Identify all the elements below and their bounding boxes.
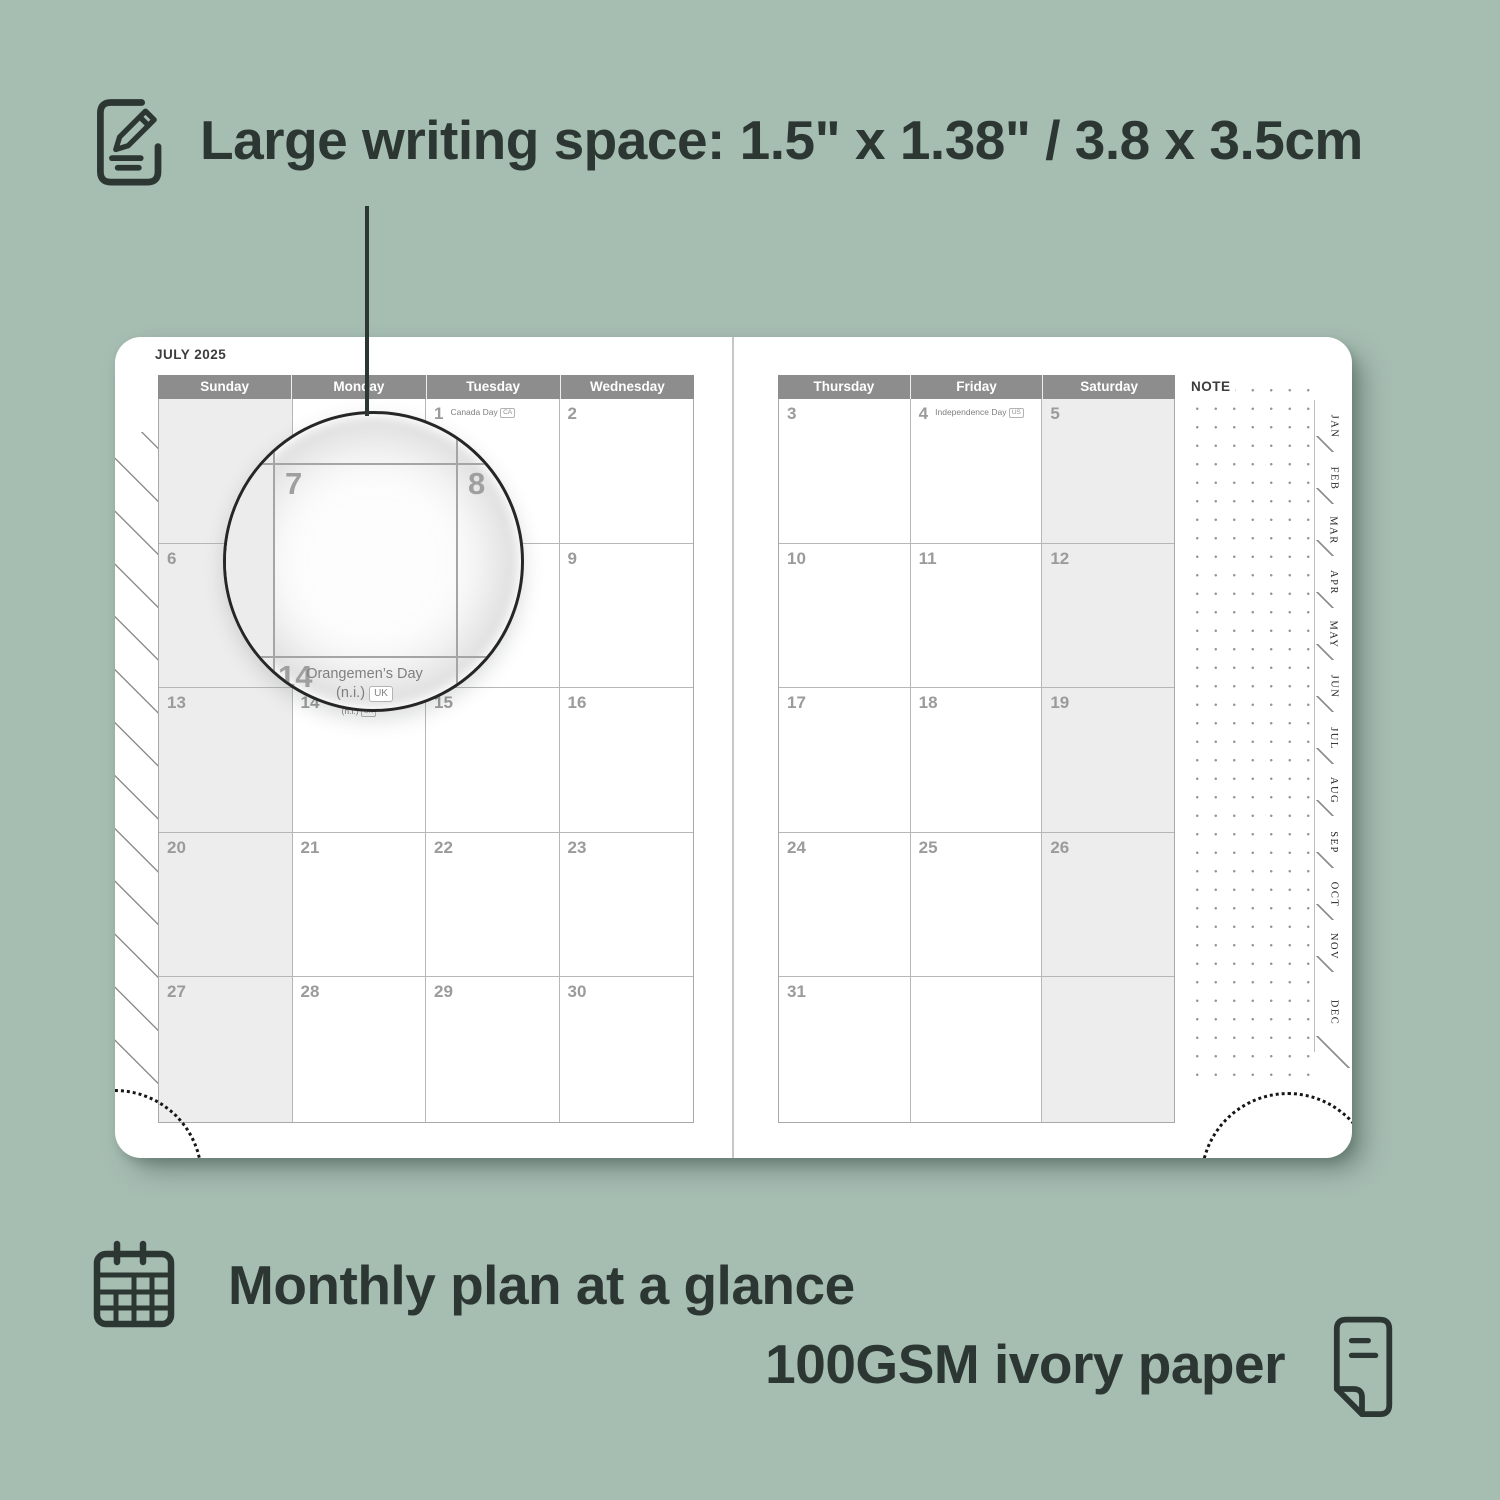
calendar-grid-icon <box>84 1232 184 1342</box>
feature-monthly-plan-label: Monthly plan at a glance <box>228 1255 855 1316</box>
calendar-cell-18: 18 <box>911 688 1043 833</box>
month-tab-jan: JAN <box>1314 400 1352 452</box>
month-tab-label: FEB <box>1328 466 1339 490</box>
calendar-cell-21: 21 <box>293 833 427 978</box>
month-tab-mar: MAR <box>1314 504 1352 556</box>
month-tab-label: JUN <box>1328 674 1339 698</box>
date-number: 20 <box>159 833 186 856</box>
calendar-cell-23: 23 <box>560 833 694 978</box>
month-tab-label: JAN <box>1328 414 1339 438</box>
calendar-cell <box>1042 977 1174 1122</box>
date-number: 25 <box>911 833 938 856</box>
magnified-weekend-shading <box>226 414 273 709</box>
date-number: 10 <box>779 544 806 567</box>
date-number: 30 <box>560 977 587 1000</box>
month-tab-jul: JUL <box>1314 712 1352 764</box>
calendar-cell-13: 13 <box>159 688 293 833</box>
calendar-cell-11: 11 <box>911 544 1043 689</box>
date-number <box>911 977 919 983</box>
holiday-country-badge: US <box>1009 408 1024 418</box>
calendar-cell-4: 4Independence Day US <box>911 399 1043 544</box>
magnified-grid-line <box>456 414 458 709</box>
date-number: 24 <box>779 833 806 856</box>
feature-writing-space-label: Large writing space: 1.5" x 1.38" / 3.8 … <box>200 110 1363 171</box>
product-image: { "top_feature": { "icon": "pencil-note-… <box>0 0 1500 1500</box>
date-number: 2 <box>560 399 577 422</box>
holiday-label: Independence Day US <box>935 407 1024 418</box>
date-number: 1 <box>426 399 443 422</box>
month-tab-sep: SEP <box>1314 816 1352 868</box>
paper-icon <box>1320 1311 1404 1427</box>
calendar-cell-19: 19 <box>1042 688 1174 833</box>
right-month-grid: 34Independence Day US5101112171819242526… <box>778 399 1175 1123</box>
date-number: 5 <box>1042 399 1059 422</box>
calendar-cell-22: 22 <box>426 833 560 978</box>
month-tab-label: MAR <box>1328 516 1339 544</box>
magnifier-circle: 7 8 14 Orangemen’s Day (n.i.) UK <box>223 411 524 712</box>
date-number <box>159 399 167 405</box>
holiday-country-badge: CA <box>500 408 515 418</box>
month-tab-nov: NOV <box>1314 920 1352 972</box>
day-header-wednesday: Wednesday <box>561 375 694 399</box>
calendar-cell-15: 15 <box>426 688 560 833</box>
month-tab-label: AUG <box>1328 776 1339 803</box>
calendar-cell-17: 17 <box>779 688 911 833</box>
date-number: 11 <box>911 544 937 567</box>
date-number: 29 <box>426 977 453 1000</box>
calendar-cell-24: 24 <box>779 833 911 978</box>
calendar-cell <box>911 977 1043 1122</box>
date-number: 16 <box>560 688 587 711</box>
date-number: 27 <box>159 977 186 1000</box>
month-tab-dec: DEC <box>1314 972 1352 1052</box>
date-number: 18 <box>911 688 938 711</box>
calendar-cell-3: 3 <box>779 399 911 544</box>
date-number: 12 <box>1042 544 1069 567</box>
magnified-day-8: 8 <box>468 468 485 499</box>
month-tab-label: SEP <box>1328 831 1339 854</box>
day-header-thursday: Thursday <box>778 375 911 399</box>
calendar-cell-9: 9 <box>560 544 694 689</box>
month-tab-may: MAY <box>1314 608 1352 660</box>
month-tab-jun: JUN <box>1314 660 1352 712</box>
magnified-grid-line <box>226 463 521 465</box>
calendar-cell-31: 31 <box>779 977 911 1122</box>
magnified-holiday-label: Orangemen’s Day (n.i.) UK <box>273 665 456 703</box>
calendar-cell-30: 30 <box>560 977 694 1122</box>
booklet-spine <box>732 337 734 1158</box>
date-number: 21 <box>293 833 320 856</box>
date-number: 28 <box>293 977 320 1000</box>
calendar-cell-26: 26 <box>1042 833 1174 978</box>
date-number: 31 <box>779 977 806 1000</box>
calendar-cell-28: 28 <box>293 977 427 1122</box>
magnified-day-7: 7 <box>285 468 302 499</box>
date-number: 9 <box>560 544 577 567</box>
note-dot-grid <box>1188 381 1312 1081</box>
month-tab-label: MAY <box>1328 620 1339 648</box>
date-number: 26 <box>1042 833 1069 856</box>
month-tab-label: DEC <box>1328 999 1339 1025</box>
date-number: 3 <box>779 399 796 422</box>
month-tab-label: JUL <box>1328 727 1339 750</box>
month-tab-label: NOV <box>1328 932 1339 959</box>
calendar-cell-16: 16 <box>560 688 694 833</box>
calendar-cell-12: 12 <box>1042 544 1174 689</box>
day-header-saturday: Saturday <box>1043 375 1175 399</box>
month-tab-feb: FEB <box>1314 452 1352 504</box>
calendar-cell-25: 25 <box>911 833 1043 978</box>
holiday-country-badge: UK <box>369 686 393 702</box>
month-tab-apr: APR <box>1314 556 1352 608</box>
calendar-cell-29: 29 <box>426 977 560 1122</box>
note-column-label: NOTE <box>1191 379 1235 394</box>
month-tab-aug: AUG <box>1314 764 1352 816</box>
day-header-monday: Monday <box>292 375 426 399</box>
date-number: 4 <box>911 399 928 422</box>
date-number: 13 <box>159 688 186 711</box>
month-tab-oct: OCT <box>1314 868 1352 920</box>
date-number: 17 <box>779 688 806 711</box>
day-header-sunday: Sunday <box>158 375 292 399</box>
calendar-cell-27: 27 <box>159 977 293 1122</box>
right-day-header-bar: ThursdayFridaySaturday <box>778 375 1175 399</box>
day-header-tuesday: Tuesday <box>427 375 561 399</box>
annotation-connector-line <box>365 206 369 416</box>
calendar-cell-5: 5 <box>1042 399 1174 544</box>
month-tab-label: APR <box>1328 570 1339 595</box>
calendar-cell-2: 2 <box>560 399 694 544</box>
date-number <box>293 399 301 405</box>
holiday-label: Canada Day CA <box>450 407 515 418</box>
calendar-cell-10: 10 <box>779 544 911 689</box>
month-title: JULY 2025 <box>155 347 226 362</box>
page-edge-hatching <box>115 432 159 1092</box>
calendar-cell-20: 20 <box>159 833 293 978</box>
date-number: 23 <box>560 833 587 856</box>
date-number <box>1042 977 1050 983</box>
magnified-grid-line <box>226 656 521 658</box>
corner-stitch-right <box>1200 1092 1352 1158</box>
date-number: 6 <box>159 544 176 567</box>
month-tab-strip: JANFEBMARAPRMAYJUNJULAUGSEPOCTNOVDEC <box>1314 400 1352 1052</box>
pencil-note-icon <box>86 84 182 192</box>
month-tab-label: OCT <box>1328 881 1339 907</box>
feature-paper-label: 100GSM ivory paper <box>765 1334 1285 1395</box>
date-number: 22 <box>426 833 453 856</box>
date-number: 19 <box>1042 688 1069 711</box>
day-header-friday: Friday <box>911 375 1044 399</box>
left-day-header-bar: SundayMondayTuesdayWednesday <box>158 375 694 399</box>
